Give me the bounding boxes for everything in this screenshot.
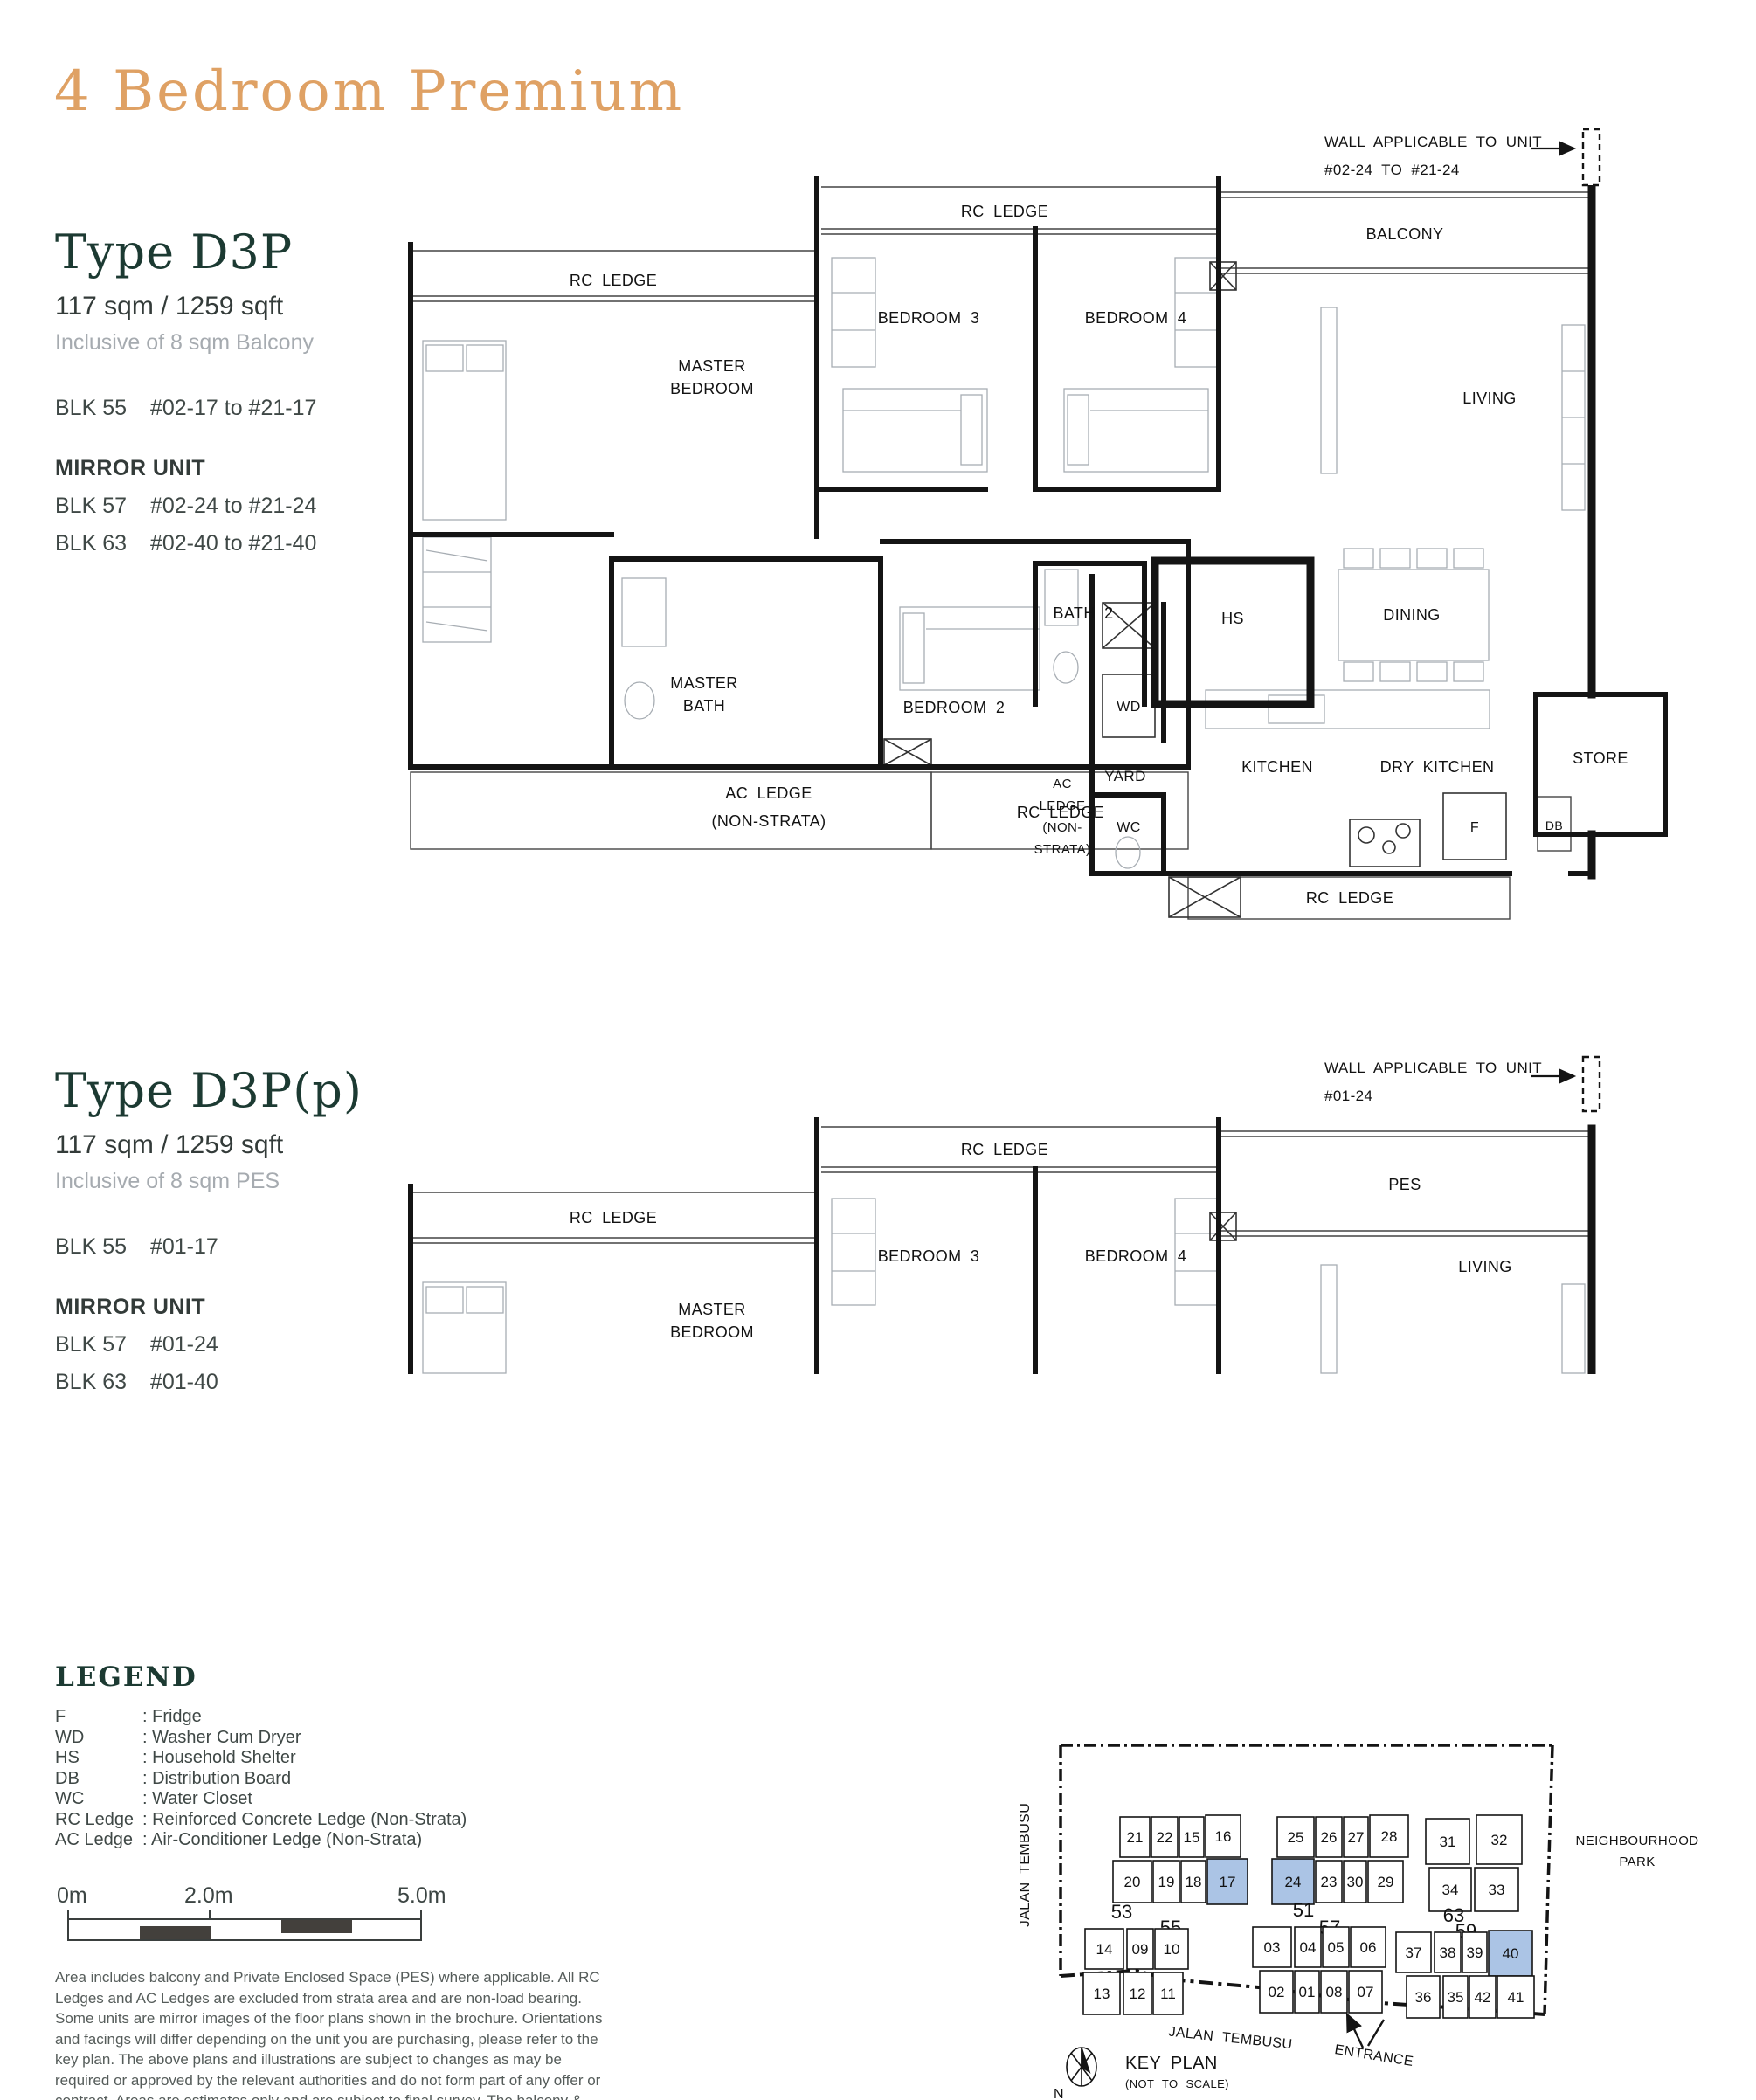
legend-desc: : Reinforced Concrete Ledge (Non-Strata) — [142, 1810, 467, 1829]
block-units: #01-40 — [150, 1370, 218, 1394]
legend-abbr: HS — [55, 1748, 142, 1769]
type-name: Type D3P — [55, 229, 431, 276]
room-label: YARD — [1104, 768, 1146, 784]
disclaimer-text: Area includes balcony and Private Enclos… — [55, 1967, 614, 2100]
room-label: RC LEDGE — [570, 272, 657, 289]
keyplan-label: NEIGHBOURHOODPARK — [1575, 1834, 1698, 1869]
room-label: MASTERBEDROOM — [670, 1301, 754, 1341]
keyplan-label: (NOT TO SCALE) — [1125, 2077, 1229, 2090]
room-label: BEDROOM 4 — [1085, 1247, 1187, 1265]
block-label: BLK 63 — [55, 1370, 144, 1395]
bedroom2-bed — [900, 607, 1040, 690]
room-label: RC LEDGE — [961, 203, 1048, 220]
plan1-room-labels: WALL APPLICABLE TO UNIT#02-24 TO #21-24R… — [570, 134, 1628, 907]
type-inclusive: Inclusive of 8 sqm Balcony — [55, 330, 431, 356]
room-label: DB — [1545, 819, 1563, 832]
keyplan-unit-number: 37 — [1406, 1945, 1422, 1961]
keyplan-block-number: 63 — [1443, 1904, 1464, 1926]
keyplan-unit-number: 10 — [1164, 1941, 1180, 1958]
block-row: BLK 63 #02-40 to #21-40 — [55, 531, 431, 556]
room-label: AC LEDGE(NON-STRATA) — [711, 784, 826, 830]
keyplan-unit-number: 29 — [1378, 1874, 1394, 1890]
floorplan-d3pp: WALL APPLICABLE TO UNIT#01-24RC LEDGERC … — [393, 1053, 1686, 1374]
keyplan-unit-number: 31 — [1440, 1834, 1456, 1850]
room-label: STORE — [1573, 750, 1628, 767]
keyplan-unit-number: 16 — [1215, 1828, 1232, 1845]
kitchen-counter — [1206, 690, 1490, 729]
room-label: KITCHEN — [1241, 758, 1313, 776]
keyplan-label: KEY PLAN — [1125, 2054, 1218, 2073]
scale-label-5: 5.0m — [398, 1883, 446, 1909]
keyplan-unit-number: 24 — [1285, 1874, 1302, 1890]
room-label: #02-24 TO #21-24 — [1324, 162, 1460, 178]
room-label: RC LEDGE — [570, 1209, 657, 1226]
bedroom3-bed — [843, 389, 987, 472]
block-row: BLK 63 #01-40 — [55, 1370, 431, 1395]
legend-abbr: DB — [55, 1769, 142, 1790]
keyplan-unit-number: 03 — [1264, 1939, 1281, 1956]
legend-row: HS: Household Shelter — [55, 1748, 467, 1769]
room-label: PES — [1388, 1176, 1421, 1193]
bedroom3-wardrobe — [832, 258, 875, 367]
block-row: BLK 57 #02-24 to #21-24 — [55, 494, 431, 519]
keyplan-unit-number: 27 — [1348, 1829, 1365, 1846]
legend-abbr: RC Ledge — [55, 1810, 142, 1831]
room-label: HS — [1221, 610, 1244, 627]
room-label: BEDROOM 2 — [903, 699, 1006, 716]
legend-desc: : Water Closet — [142, 1789, 252, 1808]
keyplan-unit-number: 28 — [1381, 1828, 1398, 1845]
keyplan-unit-number: 02 — [1269, 1984, 1285, 2000]
bath2-wc — [1054, 652, 1078, 683]
scale-label-0: 0m — [57, 1883, 87, 1909]
block-units: #02-40 to #21-40 — [150, 531, 316, 556]
type-name: Type D3P(p) — [55, 1067, 431, 1115]
keyplan-unit-number: 35 — [1448, 1989, 1464, 2006]
scale-bar: 0m 2.0m 5.0m — [55, 1883, 439, 1945]
keyplan-unit-number: 04 — [1300, 1939, 1317, 1956]
bedroom3-wardrobe — [832, 1199, 875, 1305]
keyplan-unit-number: 21 — [1127, 1829, 1144, 1846]
keyplan-label: JALAN TEMBUSU — [1168, 2025, 1293, 2053]
mirror-unit-heading: MIRROR UNIT — [55, 456, 431, 481]
legend: LEGEND F: FridgeWD: Washer Cum DryerHS: … — [55, 1661, 467, 1851]
room-label: BATH 2 — [1053, 604, 1113, 622]
keyplan-unit-number: 01 — [1299, 1984, 1316, 2000]
block-label: BLK 63 — [55, 531, 144, 556]
type-inclusive: Inclusive of 8 sqm PES — [55, 1169, 431, 1194]
keyplan-unit-number: 19 — [1158, 1874, 1175, 1890]
keyplan-unit-number: 09 — [1132, 1941, 1149, 1958]
room-label: LIVING — [1458, 1258, 1511, 1275]
block-label: BLK 57 — [55, 494, 144, 519]
keyplan-unit-number: 22 — [1157, 1829, 1173, 1846]
legend-row: AC Ledge: Air-Conditioner Ledge (Non-Str… — [55, 1830, 467, 1851]
keyplan-unit-number: 23 — [1321, 1874, 1338, 1890]
brochure-page: 4 Bedroom Premium Type D3P 117 sqm / 125… — [0, 0, 1756, 2100]
ledge-lines — [411, 187, 1590, 919]
keyplan-unit-number: 42 — [1475, 1989, 1491, 2006]
keyplan-unit-number: 12 — [1130, 1986, 1146, 2002]
keyplan-unit-number: 13 — [1094, 1986, 1110, 2002]
legend-abbr: WD — [55, 1728, 142, 1749]
room-label: RC LEDGE — [1306, 889, 1393, 907]
keyplan-unit-number: 07 — [1358, 1984, 1374, 2000]
keyplan-unit-number: 30 — [1347, 1874, 1364, 1890]
keyplan-label: N — [1054, 2087, 1064, 2100]
keyplan-unit-number: 38 — [1440, 1945, 1456, 1961]
room-label: MASTERBEDROOM — [670, 357, 754, 397]
tv-console — [1321, 1265, 1337, 1373]
bedroom4-bed — [1064, 389, 1208, 472]
legend-abbr: WC — [55, 1789, 142, 1810]
sofa — [1562, 1284, 1585, 1373]
scale-label-2: 2.0m — [184, 1883, 233, 1909]
block-units: #02-17 to #21-17 — [150, 396, 316, 420]
keyplan-unit-number: 26 — [1321, 1829, 1338, 1846]
room-label: DINING — [1383, 606, 1440, 624]
block-units: #01-24 — [150, 1332, 218, 1357]
legend-desc: : Household Shelter — [142, 1748, 296, 1767]
room-label: DRY KITCHEN — [1380, 758, 1495, 776]
room-label: MASTERBATH — [670, 674, 737, 715]
room-label: RC LEDGE — [1017, 804, 1104, 821]
keyplan-unit-number: 34 — [1442, 1882, 1459, 1898]
plan2-room-labels: WALL APPLICABLE TO UNIT#01-24RC LEDGERC … — [570, 1060, 1542, 1341]
section-d3p-info: Type D3P 117 sqm / 1259 sqft Inclusive o… — [55, 229, 431, 556]
legend-desc: : Air-Conditioner Ledge (Non-Strata) — [142, 1830, 422, 1849]
household-shelter — [1155, 561, 1310, 704]
keyplan-label: ENTRANCE — [1333, 2042, 1414, 2069]
master-bed — [423, 341, 506, 520]
floorplan-d3p: WALL APPLICABLE TO UNIT#02-24 TO #21-24R… — [393, 83, 1686, 961]
type-area: 117 sqm / 1259 sqft — [55, 292, 431, 321]
masterbath-wc — [625, 682, 654, 719]
room-label: BALCONY — [1366, 225, 1444, 243]
legend-title: LEGEND — [55, 1661, 467, 1693]
compass-icon — [1067, 2048, 1096, 2086]
legend-desc: : Distribution Board — [142, 1769, 291, 1788]
room-label: WALL APPLICABLE TO UNIT — [1324, 134, 1542, 150]
fixtures — [884, 262, 1506, 917]
keyplan-unit-number: 32 — [1491, 1832, 1508, 1848]
keyplan-label: JALAN TEMBUSU — [1018, 1803, 1033, 1927]
room-label: WC — [1117, 820, 1140, 835]
legend-row: WD: Washer Cum Dryer — [55, 1728, 467, 1749]
keyplan-block-number: 51 — [1293, 1899, 1314, 1921]
block-units: #02-24 to #21-24 — [150, 494, 316, 518]
keyplan-unit-number: 18 — [1186, 1874, 1202, 1890]
room-label: BEDROOM 3 — [878, 309, 980, 327]
room-label: RC LEDGE — [961, 1141, 1048, 1158]
block-row: BLK 57 #01-24 — [55, 1332, 431, 1357]
legend-desc: : Fridge — [142, 1707, 202, 1726]
block-units: #01-17 — [150, 1234, 218, 1259]
block-label: BLK 55 — [55, 1234, 144, 1260]
legend-row: DB: Distribution Board — [55, 1769, 467, 1790]
section-d3pp-info: Type D3P(p) 117 sqm / 1259 sqft Inclusiv… — [55, 1067, 431, 1395]
masterbath-vanity — [622, 578, 666, 646]
wc-toilet — [1116, 837, 1140, 868]
room-label: F — [1470, 820, 1479, 835]
keyplan-unit-number: 40 — [1503, 1945, 1519, 1962]
keyplan-unit-number: 08 — [1326, 1984, 1343, 2000]
keyplan-unit-number: 39 — [1467, 1945, 1483, 1961]
keyplan-unit-number: 33 — [1489, 1882, 1505, 1898]
block-row: BLK 55 #01-17 — [55, 1234, 431, 1260]
legend-rows: F: FridgeWD: Washer Cum DryerHS: Househo… — [55, 1707, 467, 1851]
room-label: WALL APPLICABLE TO UNIT — [1324, 1060, 1542, 1076]
legend-row: WC: Water Closet — [55, 1789, 467, 1810]
key-plan: 2122151620191817552526272824233029573132… — [1005, 1703, 1756, 2100]
keyplan-unit-number: 17 — [1220, 1874, 1236, 1890]
tv-console — [1321, 307, 1337, 473]
furniture — [423, 258, 1585, 868]
keyplan-unit-number: 15 — [1184, 1829, 1200, 1846]
kitchen-sink — [1269, 695, 1324, 723]
block-row: BLK 55 #02-17 to #21-17 — [55, 396, 431, 421]
legend-row: F: Fridge — [55, 1707, 467, 1728]
keyplan-unit-number: 25 — [1288, 1829, 1304, 1846]
keyplan-unit-number: 20 — [1124, 1874, 1141, 1890]
keyplan-unit-number: 11 — [1160, 1986, 1176, 2002]
room-label: WD — [1117, 700, 1140, 715]
keyplan-blocks: 2122151620191817552526272824233029573132… — [1083, 1815, 1534, 2018]
master-bed — [423, 1282, 506, 1373]
block-label: BLK 57 — [55, 1332, 144, 1357]
keyplan-unit-number: 05 — [1328, 1939, 1345, 1956]
mirror-unit-heading: MIRROR UNIT — [55, 1295, 431, 1320]
legend-abbr: AC Ledge — [55, 1830, 142, 1851]
keyplan-unit-number: 14 — [1096, 1941, 1113, 1958]
legend-desc: : Washer Cum Dryer — [142, 1728, 301, 1747]
legend-row: RC Ledge: Reinforced Concrete Ledge (Non… — [55, 1810, 467, 1831]
room-label: LIVING — [1462, 390, 1516, 407]
block-label: BLK 55 — [55, 396, 144, 421]
keyplan-block-number: 53 — [1111, 1901, 1132, 1923]
entrance-arrow — [1347, 2014, 1384, 2048]
keyplan-unit-number: 36 — [1415, 1989, 1432, 2006]
scale-bar-track — [67, 1918, 422, 1941]
keyplan-unit-number: 41 — [1508, 1989, 1524, 2006]
room-label: #01-24 — [1324, 1088, 1372, 1104]
legend-abbr: F — [55, 1707, 142, 1728]
keyplan-unit-number: 06 — [1360, 1939, 1377, 1956]
type-area: 117 sqm / 1259 sqft — [55, 1130, 431, 1160]
room-label: BEDROOM 3 — [878, 1247, 980, 1265]
room-label: BEDROOM 4 — [1085, 309, 1187, 327]
